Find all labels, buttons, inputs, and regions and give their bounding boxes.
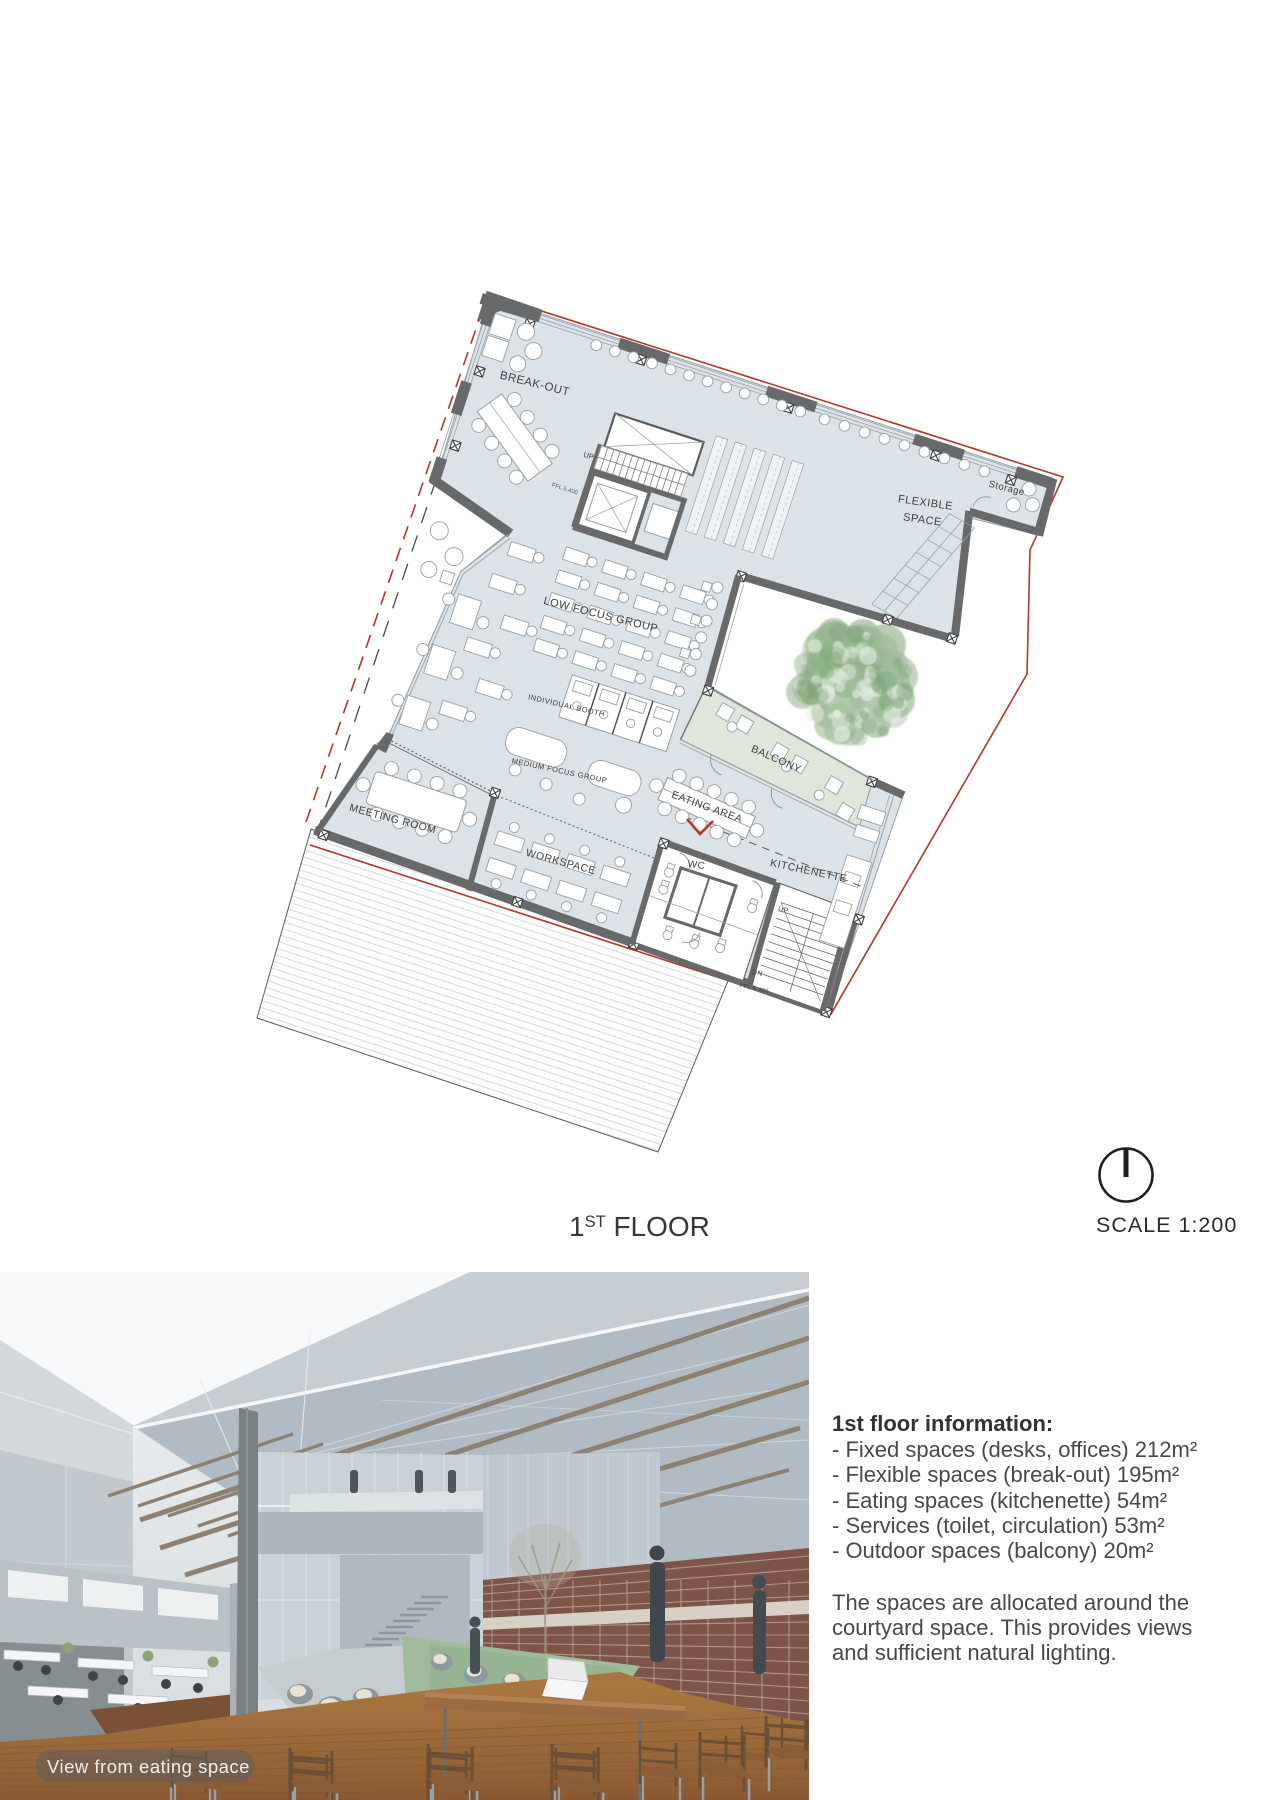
svg-text:- Eating spaces (kitchenette): - Eating spaces (kitchenette) 54m² bbox=[832, 1488, 1167, 1513]
svg-text:1st floor information:: 1st floor information: bbox=[832, 1411, 1053, 1436]
svg-text:courtyard space. This provides: courtyard space. This provides views bbox=[832, 1615, 1192, 1640]
svg-text:SCALE 1:200: SCALE 1:200 bbox=[1096, 1213, 1237, 1237]
svg-text:- Outdoor spaces (balcony) 20m: - Outdoor spaces (balcony) 20m² bbox=[832, 1538, 1154, 1563]
svg-text:and sufficient natural lightin: and sufficient natural lighting. bbox=[832, 1640, 1117, 1665]
svg-text:View from eating space: View from eating space bbox=[47, 1756, 250, 1777]
svg-text:- Flexible spaces (break-out): - Flexible spaces (break-out) 195m² bbox=[832, 1462, 1179, 1487]
svg-text:The spaces are allocated aroun: The spaces are allocated around the bbox=[832, 1590, 1189, 1615]
svg-text:- Fixed spaces (desks, offices: - Fixed spaces (desks, offices) 212m² bbox=[832, 1437, 1197, 1462]
svg-text:- Services (toilet, circulatio: - Services (toilet, circulation) 53m² bbox=[832, 1513, 1165, 1538]
